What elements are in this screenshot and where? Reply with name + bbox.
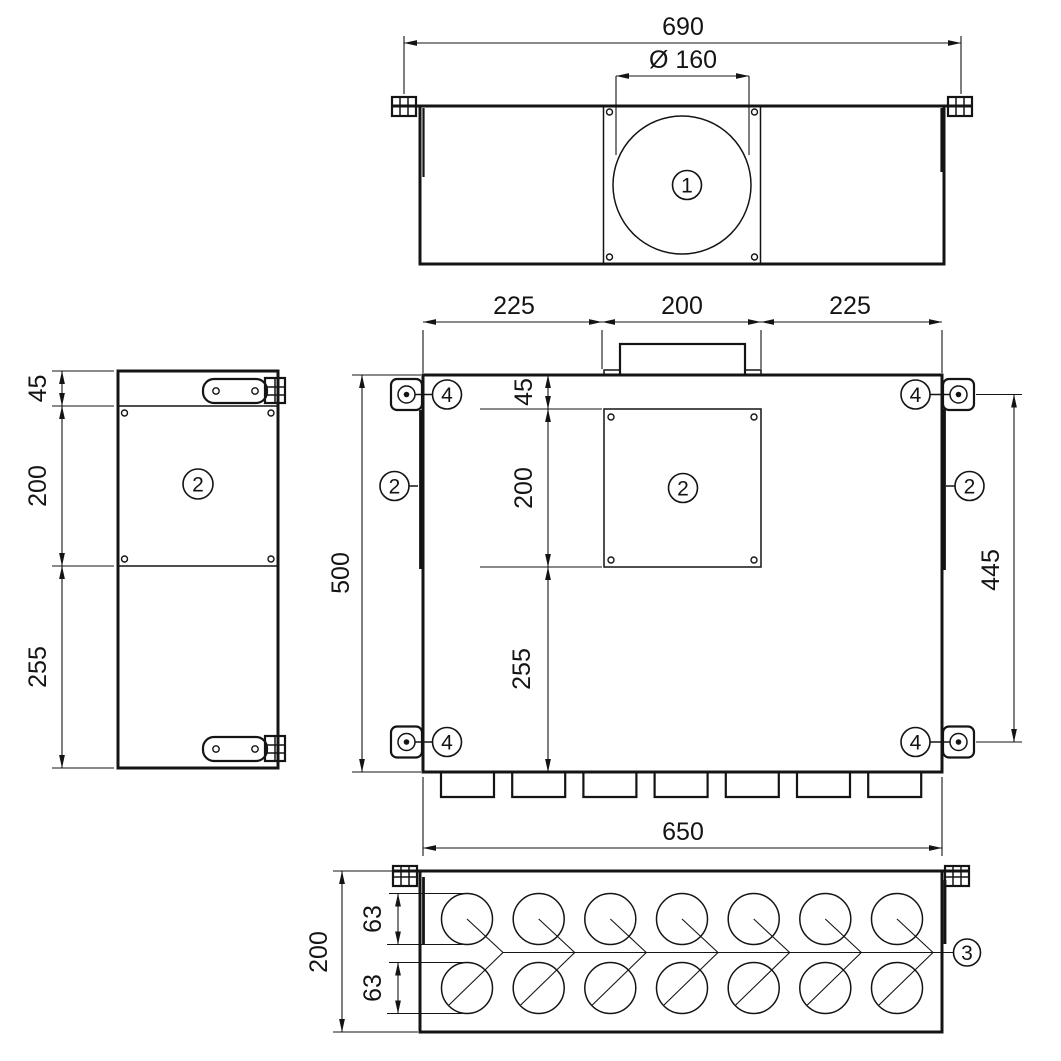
callout-2-text: 2 (677, 478, 689, 501)
front-dim-chain: 45 200 255 (480, 375, 602, 772)
outlet-leader-lines (449, 919, 953, 1005)
dim-445-text: 445 (977, 549, 1005, 591)
top-stub (620, 344, 745, 375)
callout-4-text: 4 (910, 384, 922, 407)
dim-500-text: 500 (327, 552, 355, 594)
side-dim-200-text: 200 (24, 465, 52, 507)
side-dim-45-text: 45 (24, 375, 52, 403)
bottom-view-outline (420, 871, 942, 1032)
dim-63-bottom-text: 63 (359, 974, 387, 1002)
bottom-view: 3 200 63 63 (305, 866, 981, 1032)
dim-depth-text: 200 (305, 931, 333, 973)
dim-445: 445 (976, 395, 1022, 743)
side-bracket-bottom (203, 736, 285, 761)
dim-225-right-text: 225 (829, 292, 871, 320)
front-dim-255-text: 255 (508, 648, 536, 690)
dim-690-text: 690 (662, 13, 704, 41)
front-dim-45-text: 45 (510, 378, 538, 406)
dim-650: 650 (423, 777, 942, 856)
callout-1-text: 1 (681, 175, 693, 198)
callout-4-text: 4 (910, 732, 922, 755)
top-view: 1 690 Ø 160 (392, 13, 972, 264)
technical-drawing: 1 690 Ø 160 2 (0, 0, 1061, 1061)
side-dim-255-text: 255 (24, 646, 52, 688)
side-view: 2 45 (24, 371, 285, 768)
callout-2-text: 2 (964, 476, 976, 499)
callout-1-top-spigot: 1 (673, 171, 702, 200)
dim-diameter-160: Ø 160 (616, 46, 749, 155)
side-view-outline (118, 371, 278, 768)
callout-4-text: 4 (441, 732, 453, 755)
callout-3-outlets: 3 (954, 939, 981, 966)
callout-4-text: 4 (441, 384, 453, 407)
callout-2-side-panel: 2 (183, 469, 213, 499)
dim-top-chain: 225 200 225 (423, 292, 942, 373)
side-spigot-right: 2 (945, 409, 985, 570)
front-view: 225 200 225 4 (327, 292, 1022, 856)
dim-650-text: 650 (662, 818, 704, 846)
front-access-panel: 2 (604, 409, 761, 567)
drawing-canvas: 1 690 Ø 160 2 (0, 0, 1061, 1061)
callout-2-text: 2 (389, 476, 401, 499)
dim-200-center-text: 200 (661, 292, 703, 320)
dim-depth-200: 200 (305, 871, 418, 1032)
dim-225-left-text: 225 (493, 292, 535, 320)
side-dim-chain: 45 200 255 (24, 371, 114, 768)
callout-3-text: 3 (961, 942, 973, 965)
callout-2-text: 2 (192, 474, 204, 497)
side-bracket-top (203, 378, 285, 403)
front-view-outline (423, 375, 942, 772)
dim-63-top-text: 63 (359, 905, 387, 933)
dim-500: 500 (327, 375, 421, 772)
dim-diameter-text: Ø 160 (649, 46, 717, 74)
top-stub-flange-left (604, 370, 620, 375)
outlet-holes (442, 894, 923, 1014)
bolt-left-icon (393, 866, 417, 886)
bottom-tabs (441, 772, 921, 797)
front-dim-200-text: 200 (510, 467, 538, 509)
bolt-right-icon (945, 866, 969, 886)
top-stub-flange-right (745, 370, 761, 375)
side-spigot-left: 2 (380, 410, 421, 569)
